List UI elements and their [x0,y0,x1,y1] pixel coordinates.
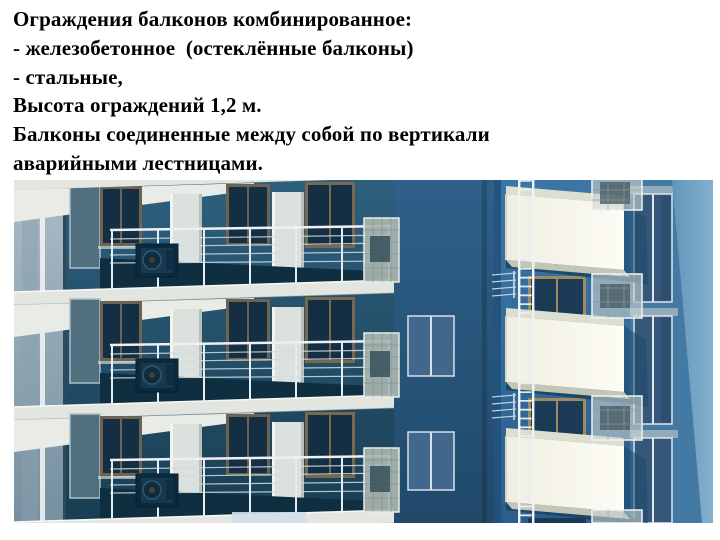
glazed-balcony-strip [14,180,66,523]
slide-canvas: Ограждения балконов комбинированное: - ж… [0,0,720,540]
text-line: Балконы соединенные между собой по верти… [13,120,613,149]
building-render-svg [14,180,713,523]
text-line: аварийными лестницами. [13,149,613,178]
text-line: - железобетонное (остеклённые балконы) [13,34,613,63]
slide-text-block: Ограждения балконов комбинированное: - ж… [13,5,613,178]
text-line: - стальные, [13,63,613,92]
text-line: Высота ограждений 1,2 м. [13,91,613,120]
corner-wall [394,180,494,523]
text-line: Ограждения балконов комбинированное: [13,5,613,34]
building-photo [14,180,713,523]
lit-window-bottom [232,512,306,523]
